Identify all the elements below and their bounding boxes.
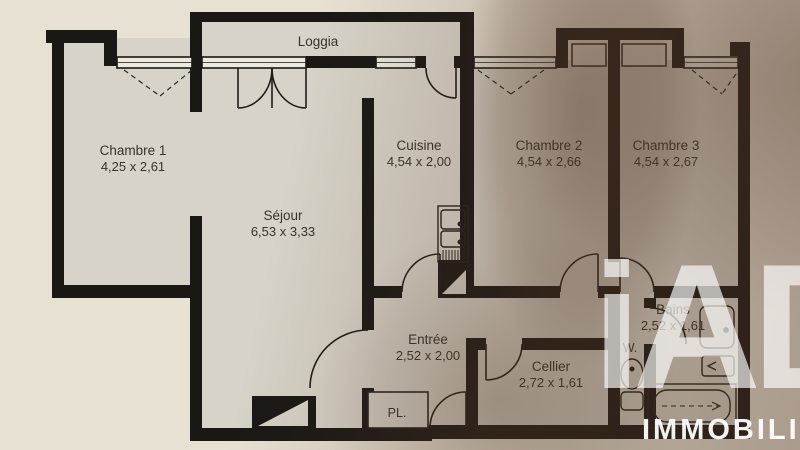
wall-segment [556,28,568,68]
iad-brand-text: IMMOBILIER [642,414,800,447]
wall-segment [672,28,684,68]
room-label-loggia: Loggia [298,34,339,49]
wall-segment [368,286,402,298]
wall-segment [52,285,202,298]
wall-segment [730,42,750,56]
room-label-placard: PL. [388,406,407,420]
room-dims-chambre3: 4,54 x 2,67 [634,154,698,169]
window-cuisine-loggia [376,57,416,68]
wall-segment [466,338,478,432]
window-chambre2 [474,57,556,68]
wall-segment [416,56,426,68]
window-chambre3 [684,57,738,68]
wall-segment [460,12,474,298]
room-floor-sejour [196,60,368,434]
window-chambre1 [117,57,192,68]
room-label-chambre1: Chambre 1 [100,143,167,158]
room-label-entree: Entrée [408,332,448,347]
room-dims-chambre2: 4,54 x 2,66 [517,154,581,169]
wall-segment [190,12,472,22]
floorplan-photo: Loggia Chambre 1 4,25 x 2,61 Séjour 6,53… [0,0,800,450]
iad-logo: iAD [592,238,800,416]
room-label-chambre3: Chambre 3 [633,138,700,153]
wall-segment [362,98,374,300]
room-dims-sejour: 6,53 x 3,33 [251,224,315,239]
wall-segment [454,56,474,68]
window-sejour-loggia [202,57,306,68]
wall-segment [362,298,374,330]
wall-segment [556,28,684,40]
wall-segment [474,286,560,298]
room-label-sejour: Séjour [263,208,303,223]
room-label-chambre2: Chambre 2 [516,138,583,153]
room-dims-entree: 2,52 x 2,00 [396,348,460,363]
room-dims-chambre1: 4,25 x 2,61 [101,159,165,174]
wall-segment [478,338,486,350]
room-label-cuisine: Cuisine [396,138,441,153]
room-dims-cellier: 2,72 x 1,61 [519,375,583,390]
wall-segment [52,30,64,297]
wall-segment [190,216,202,441]
room-dims-cuisine: 4,54 x 2,00 [387,154,451,169]
wall-segment [306,56,376,68]
room-label-cellier: Cellier [532,359,571,374]
wall-segment [104,30,117,66]
wall-segment [366,428,432,441]
